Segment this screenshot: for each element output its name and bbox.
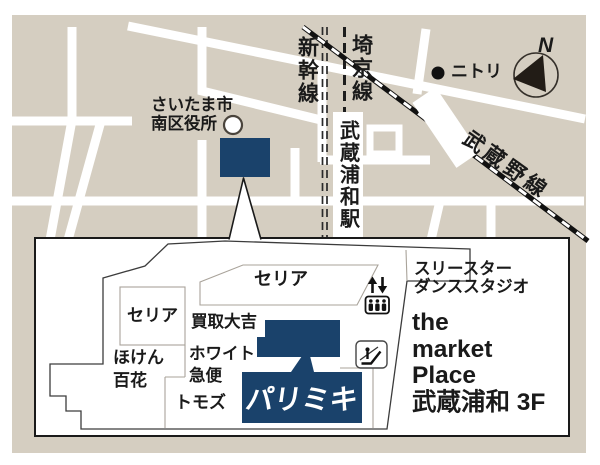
store-label-dance-studio: スリースター ダンススタジオ: [414, 260, 529, 296]
ward-office-line2: 南区役所: [151, 115, 233, 134]
store-label-seria-left: セリア: [127, 306, 178, 325]
store-access-map: さいたま市 南区役所 新幹線 埼京線 武蔵浦和駅 武蔵野線 ニトリ N セリア …: [0, 0, 600, 465]
location-marker: [220, 138, 270, 177]
paris-miki-store-shape: [257, 320, 340, 357]
hoken-line2: 百花: [113, 369, 164, 392]
escalator-icon: [356, 341, 387, 368]
paris-miki-label: パリミキ: [243, 378, 361, 418]
ward-office-line1: さいたま市: [151, 96, 233, 115]
building-name-line3: Place: [412, 363, 545, 390]
store-label-tomods: トモズ: [175, 393, 226, 412]
dance-studio-line2: ダンススタジオ: [414, 278, 529, 296]
building-name-line1: the: [412, 310, 545, 337]
paris-miki-label-box: パリミキ: [242, 372, 362, 423]
ward-office-label: さいたま市 南区役所: [151, 96, 233, 133]
store-label-hoken-hyakka: ほけん 百花: [113, 346, 164, 392]
store-label-kaitori-daikichi: 買取大吉: [191, 313, 257, 331]
building-name-label: the market Place 武蔵浦和 3F: [412, 310, 545, 416]
nitori-label: ニトリ: [451, 62, 502, 81]
hoken-line1: ほけん: [113, 346, 164, 369]
shinkansen-label: 新幹線: [295, 36, 319, 105]
saikyo-line-label: 埼京線: [349, 34, 373, 103]
nitori-dot-icon: [432, 67, 445, 80]
building-name-line2: market: [412, 337, 545, 364]
station-label-box: 武蔵浦和駅: [333, 112, 363, 237]
dance-studio-line1: スリースター: [414, 260, 529, 278]
building-name-line4: 武蔵浦和 3F: [412, 390, 545, 417]
compass-north-label: N: [538, 34, 553, 58]
station-label: 武蔵浦和駅: [334, 120, 363, 230]
store-label-seria-top: セリア: [254, 269, 308, 289]
white-kyubin-line1: ホワイト: [189, 343, 255, 365]
